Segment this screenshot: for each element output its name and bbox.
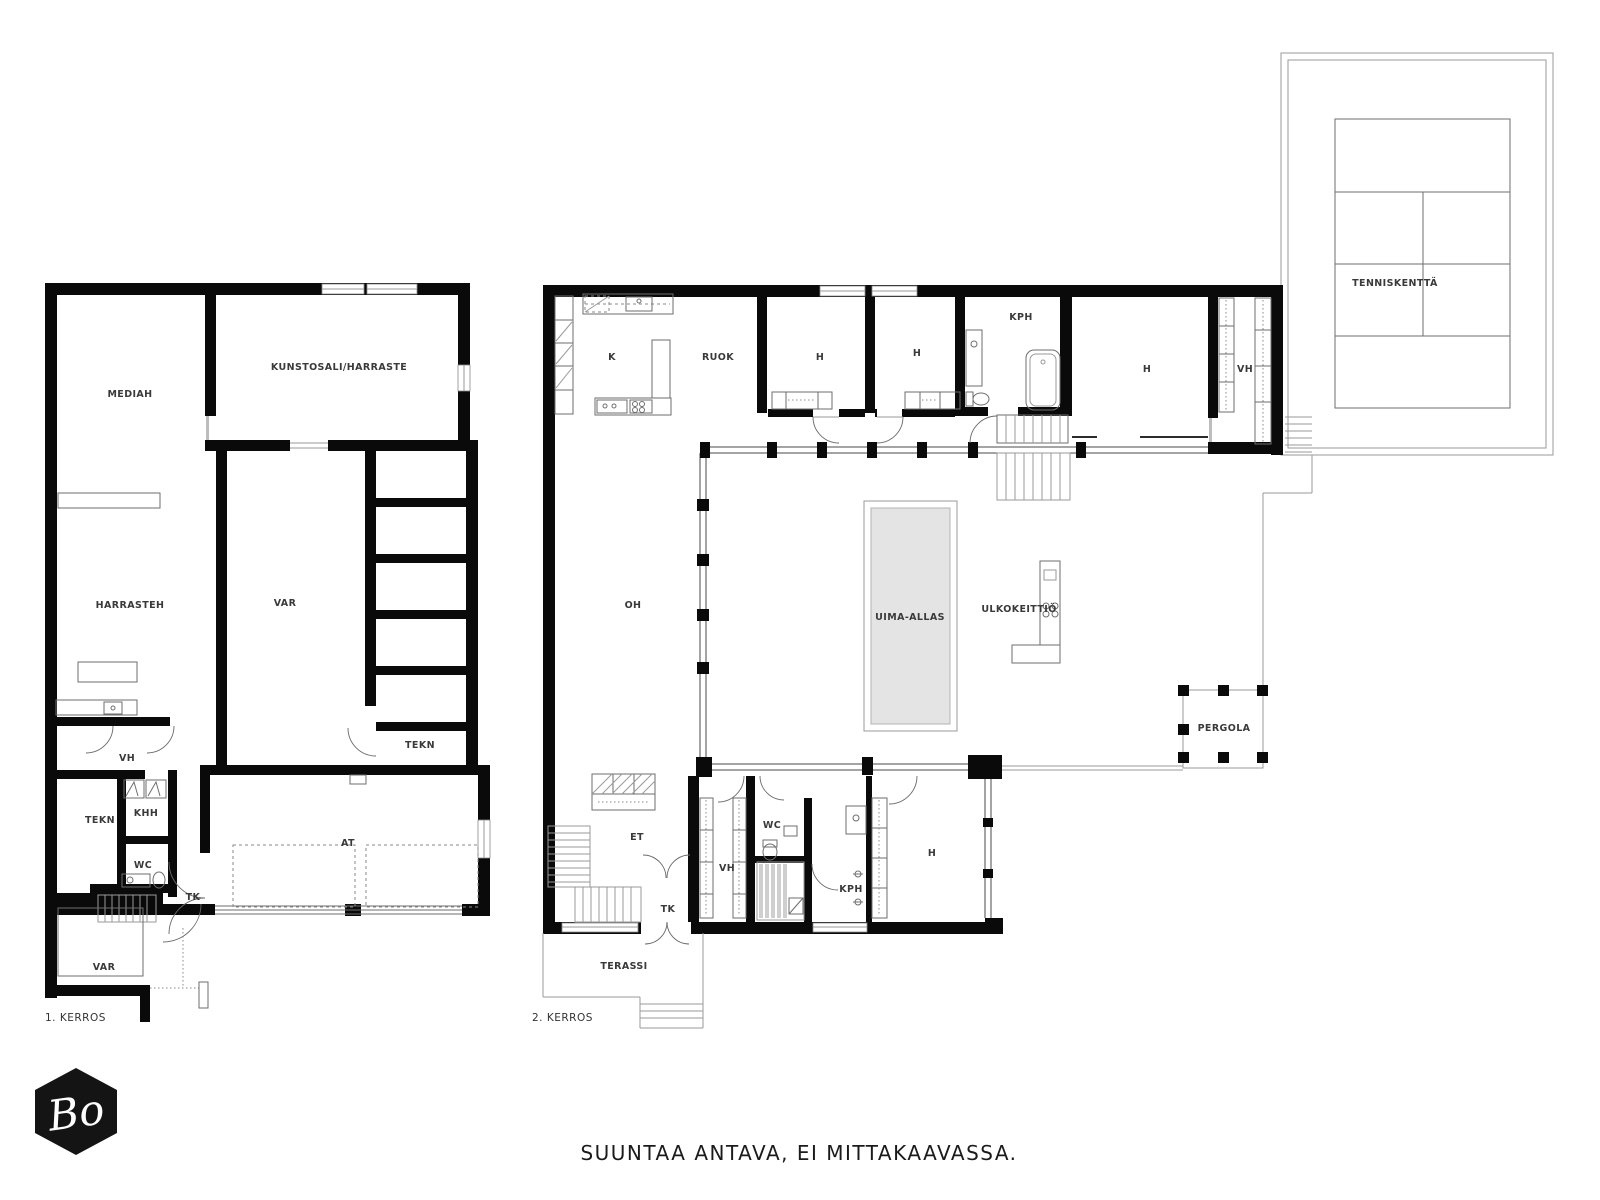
entry-wardrobe bbox=[592, 774, 655, 810]
tennis-court: TENNISKENTTÄ bbox=[1281, 53, 1553, 455]
room-label-khh: KHH bbox=[134, 808, 158, 819]
room-label-harrasteh: HARRASTEH bbox=[96, 600, 165, 611]
interior-staircase bbox=[997, 415, 1068, 443]
room-label-vh-top: VH bbox=[1237, 364, 1253, 375]
room-label-tk: TK bbox=[186, 892, 201, 903]
floor-plan-sheet: TENNISKENTTÄ bbox=[0, 0, 1600, 1200]
car-space bbox=[233, 845, 355, 907]
exterior-stair-tennis bbox=[1285, 417, 1312, 452]
exterior-staircase-pool bbox=[997, 453, 1070, 500]
floor2-title: 2. KERROS bbox=[532, 1012, 593, 1024]
room-label-et: ET bbox=[630, 832, 644, 843]
floor1-plan: MEDIAH KUNSTOSALI/HARRASTE HARRASTEH VAR… bbox=[45, 283, 490, 1024]
counter bbox=[78, 662, 137, 682]
room-label-kph-top: KPH bbox=[1009, 312, 1032, 323]
car-space bbox=[366, 845, 478, 907]
room-label-vh: VH bbox=[119, 753, 135, 764]
wardrobe bbox=[872, 798, 887, 918]
opening-marker bbox=[206, 416, 209, 440]
room-label-vh-bottom: VH bbox=[719, 863, 735, 874]
room-label-tk2: TK bbox=[661, 904, 676, 915]
wall-unit bbox=[350, 775, 366, 784]
entry-staircase bbox=[548, 826, 641, 922]
room-label-ruok: RUOK bbox=[702, 352, 734, 363]
room-label-kunstosali: KUNSTOSALI/HARRASTE bbox=[271, 362, 407, 373]
room-label-h1: H bbox=[816, 352, 824, 363]
floor2-plan: K RUOK H H KPH H VH OH UIMA-ALLAS ULKOKE… bbox=[532, 285, 1312, 1028]
room-label-at: AT bbox=[341, 838, 355, 849]
bathroom-fixtures bbox=[966, 330, 1060, 410]
room-label-tekn: TEKN bbox=[85, 815, 115, 826]
logo-monogram: Bo bbox=[44, 1084, 107, 1140]
walkin-closet-shelves bbox=[700, 798, 746, 918]
room-label-var-out: VAR bbox=[93, 962, 116, 973]
room-label-k: K bbox=[608, 352, 616, 363]
room-label-ulkokeittio: ULKOKEITTIÖ bbox=[981, 604, 1056, 615]
laundry-machines bbox=[124, 780, 166, 798]
worktop-sink bbox=[56, 700, 137, 715]
room-label-wc: WC bbox=[134, 860, 152, 871]
sauna-benches bbox=[757, 862, 804, 920]
counter bbox=[58, 493, 160, 508]
room-label-uima-allas: UIMA-ALLAS bbox=[875, 612, 945, 623]
wc-fixtures bbox=[763, 826, 797, 860]
room-label-h3: H bbox=[1143, 364, 1151, 375]
room-label-terassi: TERASSI bbox=[600, 961, 647, 972]
room-label-oh: OH bbox=[625, 600, 642, 611]
logo: Bo bbox=[35, 1068, 117, 1155]
room-label-tenniskentta: TENNISKENTTÄ bbox=[1352, 278, 1438, 289]
room-label-wc2: WC bbox=[763, 820, 781, 831]
room-label-var: VAR bbox=[274, 598, 297, 609]
room-label-h4: H bbox=[928, 848, 936, 859]
door-leaf bbox=[199, 982, 208, 1008]
floor1-title: 1. KERROS bbox=[45, 1012, 106, 1024]
footer-disclaimer: SUUNTAA ANTAVA, EI MITTAKAAVASSA. bbox=[580, 1141, 1017, 1165]
room-label-mediah: MEDIAH bbox=[107, 389, 152, 400]
room-label-pergola: PERGOLA bbox=[1198, 723, 1251, 734]
room-label-tekn-store: TEKN bbox=[405, 740, 435, 751]
room-label-kph-bottom: KPH bbox=[839, 884, 862, 895]
room-label-h2: H bbox=[913, 348, 921, 359]
